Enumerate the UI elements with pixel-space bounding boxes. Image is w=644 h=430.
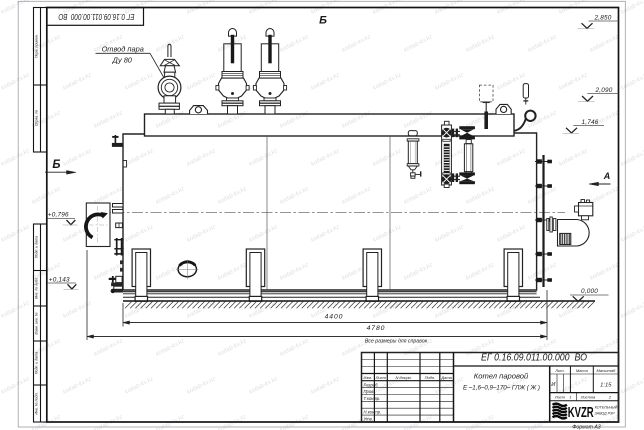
svg-text:1,746: 1,746: [582, 119, 599, 126]
svg-text:ЕГ 0.16.09.011.00.000 ВО: ЕГ 0.16.09.011.00.000 ВО: [481, 353, 587, 364]
svg-text:Ду 80: Ду 80: [112, 55, 133, 64]
svg-text:Н.контр.: Н.контр.: [364, 410, 382, 415]
svg-text:ЗАВОД РЗР: ЗАВОД РЗР: [594, 412, 615, 416]
svg-text:Утв.: Утв.: [364, 416, 374, 421]
svg-text:Отвод пара: Отвод пара: [102, 45, 144, 54]
svg-text:Формат А3: Формат А3: [572, 424, 600, 430]
svg-text:N докум.: N докум.: [396, 375, 412, 380]
svg-text:1:15: 1:15: [600, 383, 612, 389]
svg-text:4780: 4780: [367, 325, 386, 332]
svg-text:+0,796: +0,796: [48, 212, 69, 219]
svg-text:KVZR: KVZR: [568, 405, 594, 421]
svg-text:Листов: Листов: [580, 395, 596, 400]
svg-text:Лист: Лист: [375, 375, 387, 380]
svg-text:Б: Б: [319, 14, 327, 26]
svg-text:Лит.: Лит.: [554, 368, 564, 373]
svg-text:Масса: Масса: [576, 368, 589, 373]
svg-text:ЕГ 0.16.09.011.00.000 ВО: ЕГ 0.16.09.011.00.000 ВО: [58, 12, 134, 22]
svg-text:Подп.: Подп.: [425, 375, 436, 380]
svg-text:+0,143: +0,143: [49, 277, 70, 284]
svg-text:Лист: Лист: [554, 395, 566, 400]
svg-text:Е –1,6–0,9–170– ГЛЖ ( Ж ): Е –1,6–0,9–170– ГЛЖ ( Ж ): [463, 385, 540, 392]
svg-text:Подп. и дата: Подп. и дата: [35, 352, 39, 375]
svg-text:Взам. инв. №: Взам. инв. №: [35, 312, 39, 334]
svg-text:Перв. примен.: Перв. примен.: [35, 34, 39, 58]
svg-text:Пров.: Пров.: [364, 389, 375, 394]
svg-text:Т.контр.: Т.контр.: [364, 396, 381, 401]
svg-text:2,090: 2,090: [595, 87, 613, 94]
svg-text:А: А: [603, 171, 611, 181]
svg-text:Справ. №: Справ. №: [35, 110, 39, 126]
svg-text:Подп. и дата: Подп. и дата: [35, 236, 39, 259]
svg-text:Дата: Дата: [440, 375, 452, 380]
svg-text:Инв. № подл.: Инв. № подл.: [35, 392, 39, 414]
svg-text:Инв. № дубл.: Инв. № дубл.: [35, 277, 39, 299]
svg-text:Б: Б: [52, 159, 60, 171]
svg-text:Изм.: Изм.: [364, 375, 373, 380]
svg-text:0,000: 0,000: [581, 288, 598, 295]
svg-text:Разраб.: Разраб.: [364, 382, 379, 387]
svg-text:Масштаб: Масштаб: [597, 368, 616, 373]
svg-text:Котел паровой: Котел паровой: [474, 372, 529, 381]
svg-text:КОТЕЛЬНЫЙ: КОТЕЛЬНЫЙ: [595, 406, 618, 410]
svg-text:Все размеры для справок: Все размеры для справок: [365, 338, 428, 344]
svg-text:4400: 4400: [325, 314, 344, 321]
svg-text:1: 1: [569, 395, 571, 400]
